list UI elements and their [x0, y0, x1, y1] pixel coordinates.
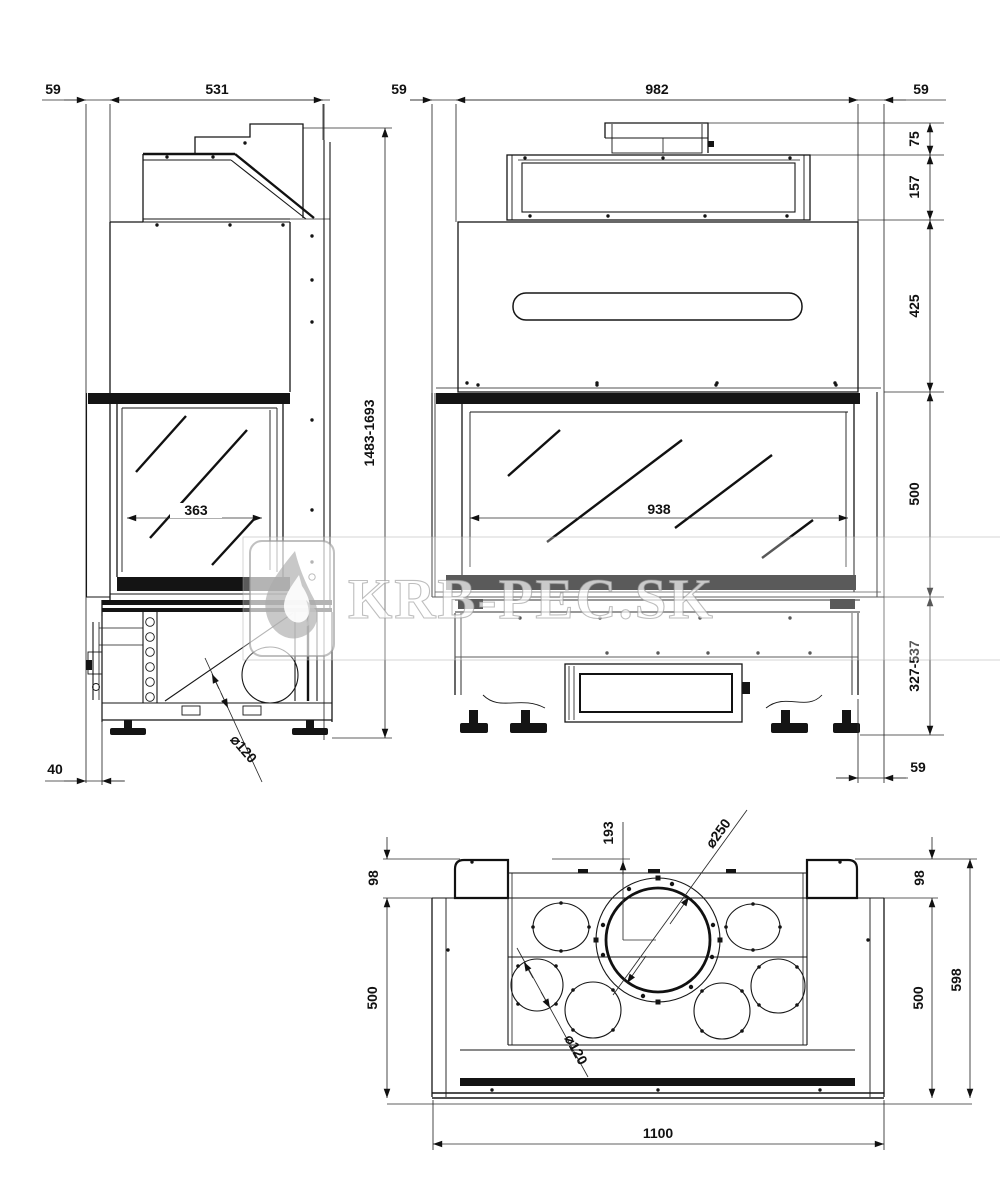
air-slot [513, 293, 802, 320]
left-shoulder [455, 860, 508, 898]
side-view: 59 531 1483-1693 [42, 81, 392, 785]
technical-drawing-page: 59 531 1483-1693 [0, 0, 1000, 1203]
dim-front-offset-right: 59 [913, 81, 929, 97]
fireplace-drawing: 59 531 1483-1693 [0, 0, 1000, 1203]
dim-front-offset-bottom: 59 [910, 759, 926, 775]
dim-side-height: 1483-1693 [361, 399, 377, 466]
dim-side-base-offset: 40 [47, 761, 63, 777]
dim-plan-depth-total: 598 [948, 968, 964, 992]
plan-view: 193 ⌀250 ⌀120 98 500 98 500 598 1100 [364, 810, 977, 1150]
dim-plan-center: 193 [600, 821, 616, 845]
flue-stub [605, 123, 714, 153]
dim-front-collar: 157 [906, 175, 922, 199]
dim-front-glass-width: 938 [647, 501, 671, 517]
dim-front-glass-height: 500 [906, 482, 922, 506]
dim-plan-depth-left: 500 [364, 986, 380, 1010]
watermark-text: KRB-PEC.SK [348, 568, 715, 631]
dim-front-width: 982 [645, 81, 669, 97]
hood-panel [458, 222, 858, 392]
dim-front-hood: 425 [906, 294, 922, 318]
dim-side-flue-dia: ⌀120 [227, 731, 260, 766]
dim-plan-depth-right: 500 [910, 986, 926, 1010]
dim-front-stub: 75 [906, 131, 922, 147]
dim-plan-rear-right: 98 [911, 870, 927, 886]
flue-collar-circle [594, 876, 723, 1005]
dim-side-depth: 531 [205, 81, 229, 97]
convection-collar [507, 155, 810, 220]
dim-front-offset-left: 59 [391, 81, 407, 97]
dim-plan-rear-left: 98 [365, 870, 381, 886]
dim-plan-width-total: 1100 [643, 1125, 674, 1141]
watermark: KRB-PEC.SK [243, 537, 1000, 660]
knockout-holes [511, 901, 805, 1039]
dim-plan-collar-dia: ⌀250 [702, 815, 734, 850]
dim-side-offset: 59 [45, 81, 61, 97]
ash-drawer [565, 664, 742, 722]
dim-side-glass-width: 363 [184, 502, 208, 518]
right-shoulder [807, 860, 857, 898]
front-view: 59 982 59 [391, 81, 946, 783]
